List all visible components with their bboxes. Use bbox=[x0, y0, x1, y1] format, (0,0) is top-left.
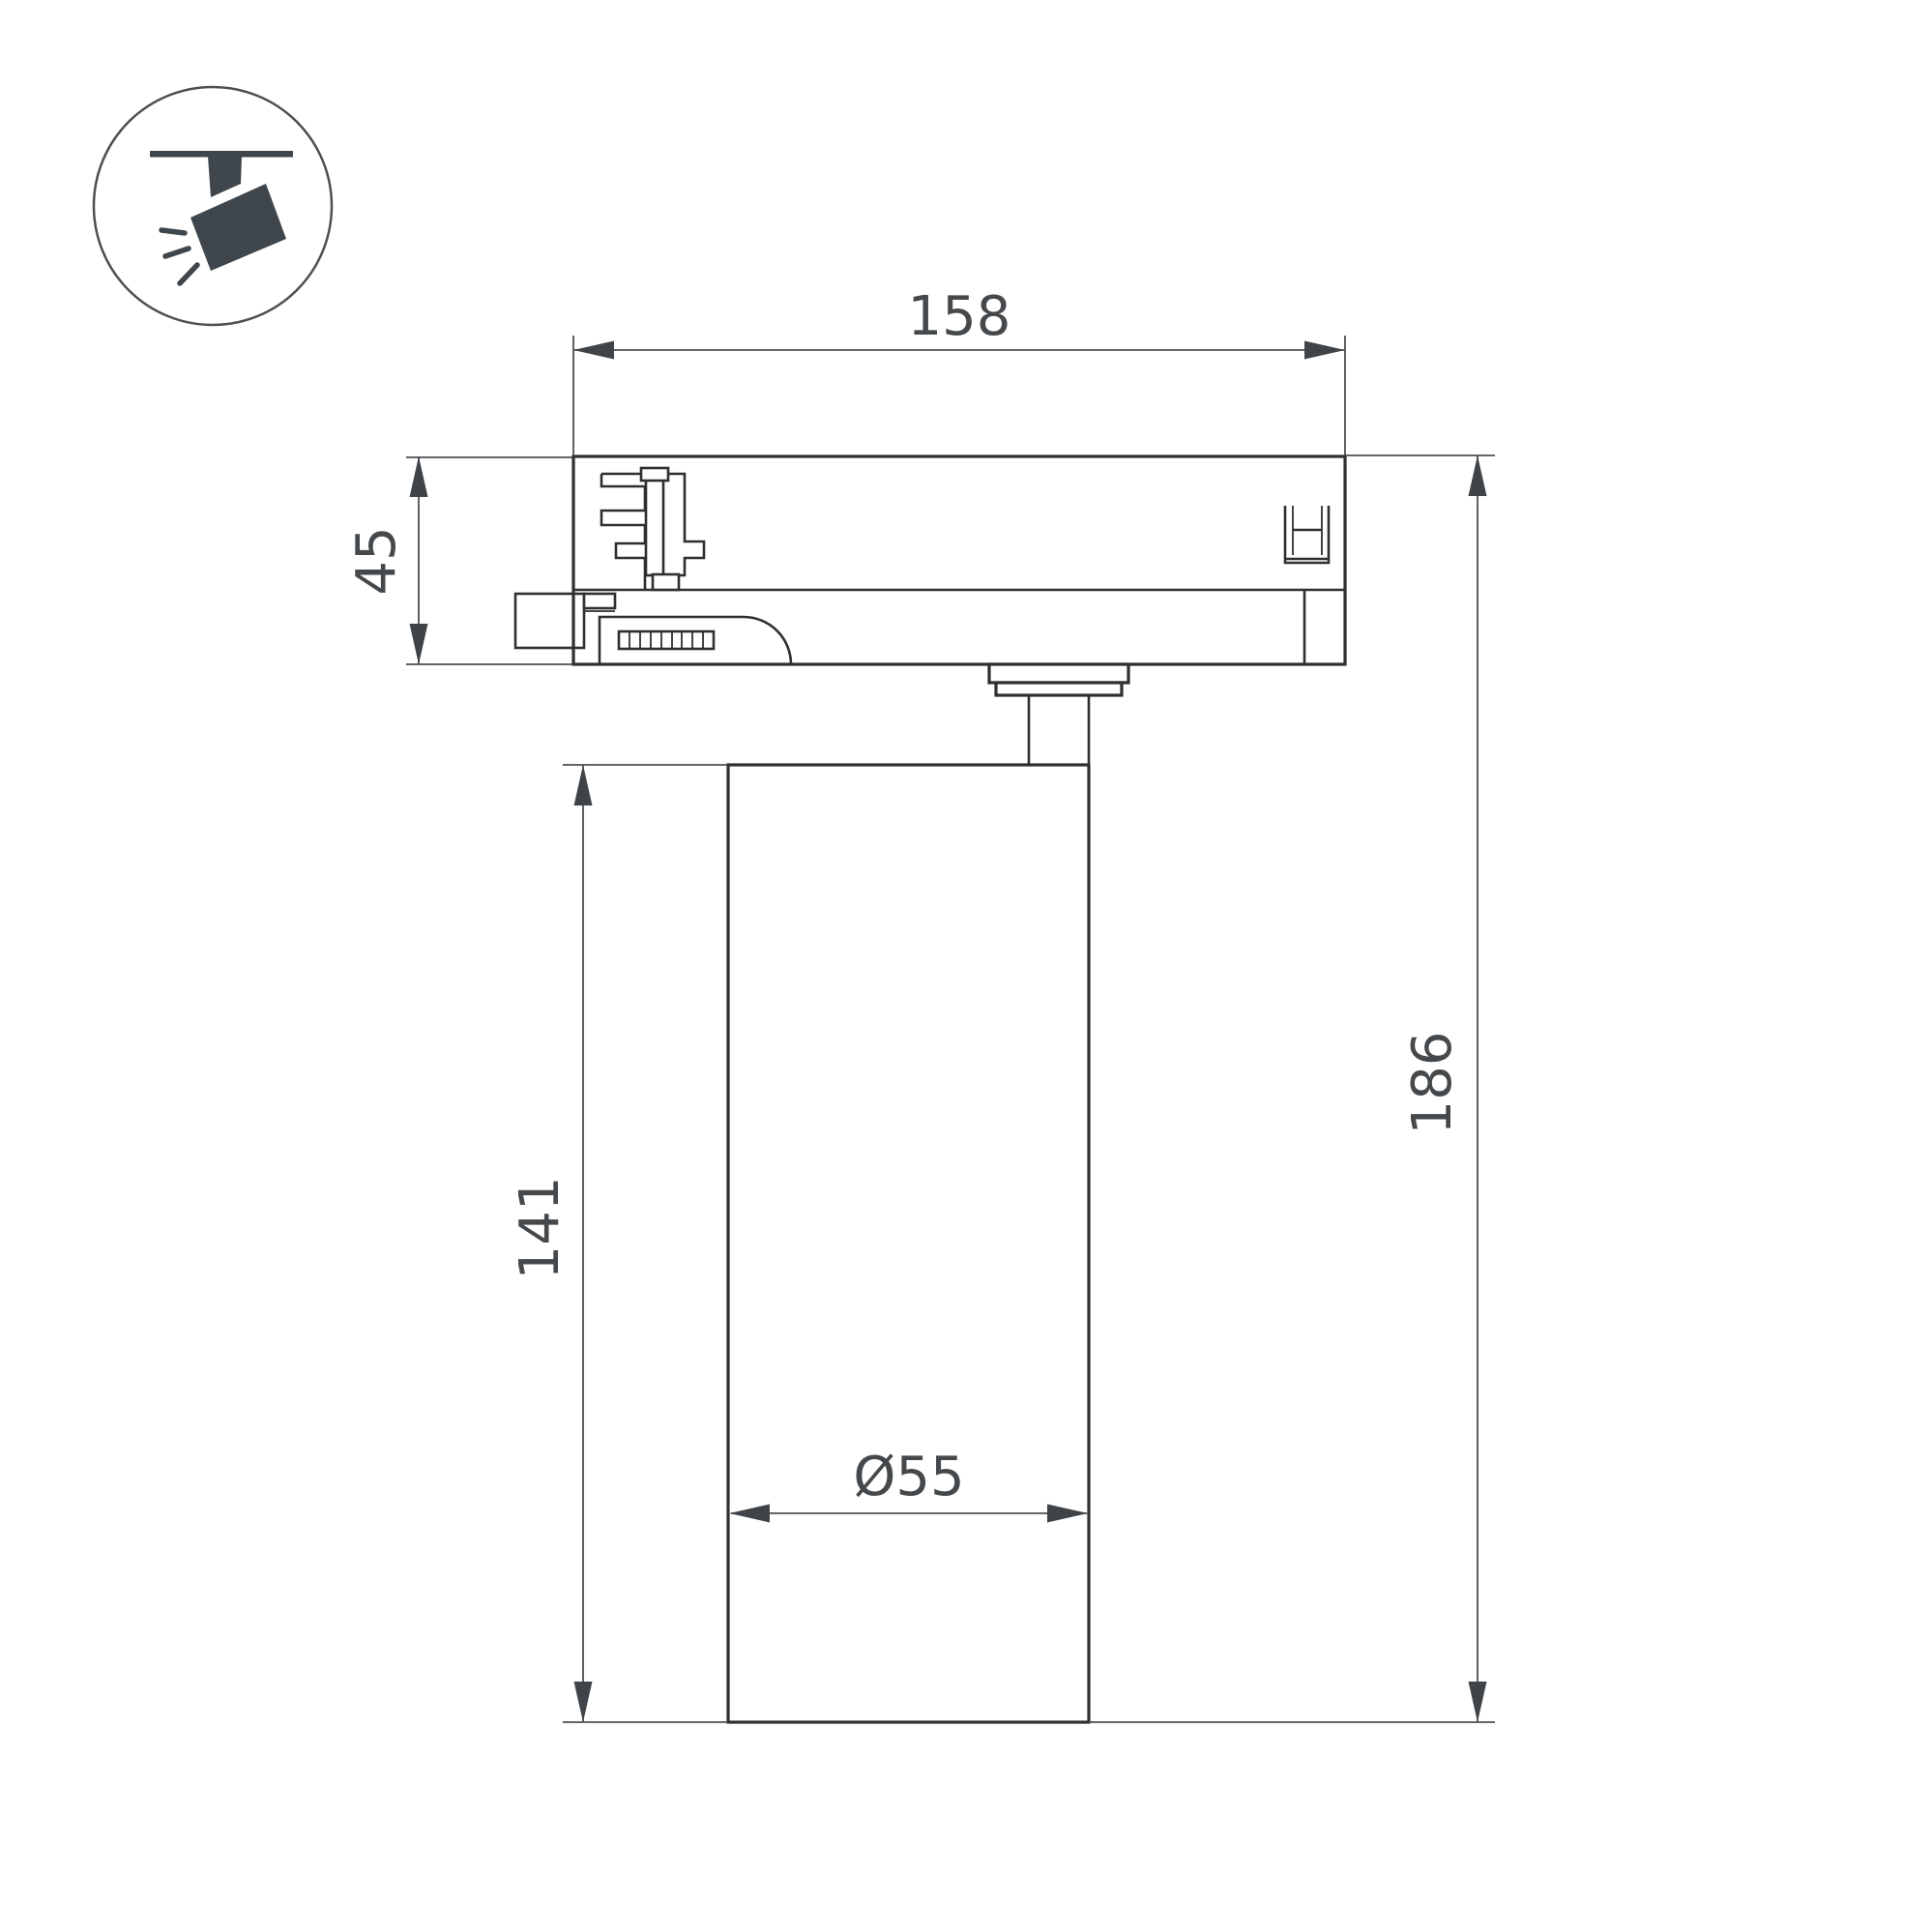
dimension-body-height: 141 bbox=[509, 765, 727, 1722]
icon-track-bar bbox=[150, 151, 293, 158]
contact-foot bbox=[653, 574, 679, 590]
lock-latch bbox=[584, 594, 615, 608]
arrowhead-down bbox=[574, 1682, 593, 1722]
contact-shaft bbox=[646, 474, 663, 575]
dimension-adapter-height: 45 bbox=[345, 456, 572, 664]
track-spotlight-icon bbox=[94, 87, 332, 325]
dimension-label-body-height: 141 bbox=[509, 1177, 571, 1280]
lamp-cylinder bbox=[728, 765, 1089, 1722]
arrowhead-down bbox=[1469, 1682, 1487, 1722]
adapter-body bbox=[573, 456, 1345, 664]
dimension-overall-height: 186 bbox=[1346, 455, 1495, 1722]
dimension-label-adapter-width: 158 bbox=[908, 285, 1011, 348]
lamp-body bbox=[728, 765, 1089, 1722]
dimension-adapter-width: 158 bbox=[573, 285, 1345, 455]
contact-cap bbox=[641, 468, 668, 481]
dimension-label-adapter-height: 45 bbox=[345, 526, 408, 595]
stem-flange-upper bbox=[989, 664, 1128, 683]
stem-flange-lower bbox=[996, 683, 1122, 695]
mounting-stem bbox=[989, 664, 1128, 765]
arrowhead-right bbox=[1304, 341, 1345, 360]
arrowhead-up bbox=[410, 456, 428, 497]
dimension-label-body-diameter: Ø55 bbox=[853, 1446, 964, 1508]
drawing-canvas: 158 45 141 Ø55 bbox=[0, 0, 1932, 1932]
icon-light-ray-1 bbox=[161, 230, 185, 233]
arrowhead-up bbox=[574, 765, 593, 805]
track-adapter bbox=[515, 456, 1345, 664]
arrowhead-down bbox=[410, 624, 428, 664]
dimension-label-overall-height: 186 bbox=[1401, 1032, 1464, 1135]
arrowhead-up bbox=[1469, 455, 1487, 496]
icon-circle bbox=[94, 87, 332, 325]
technical-drawing: 158 45 141 Ø55 bbox=[0, 0, 1932, 1932]
arrowhead-left bbox=[573, 341, 614, 360]
